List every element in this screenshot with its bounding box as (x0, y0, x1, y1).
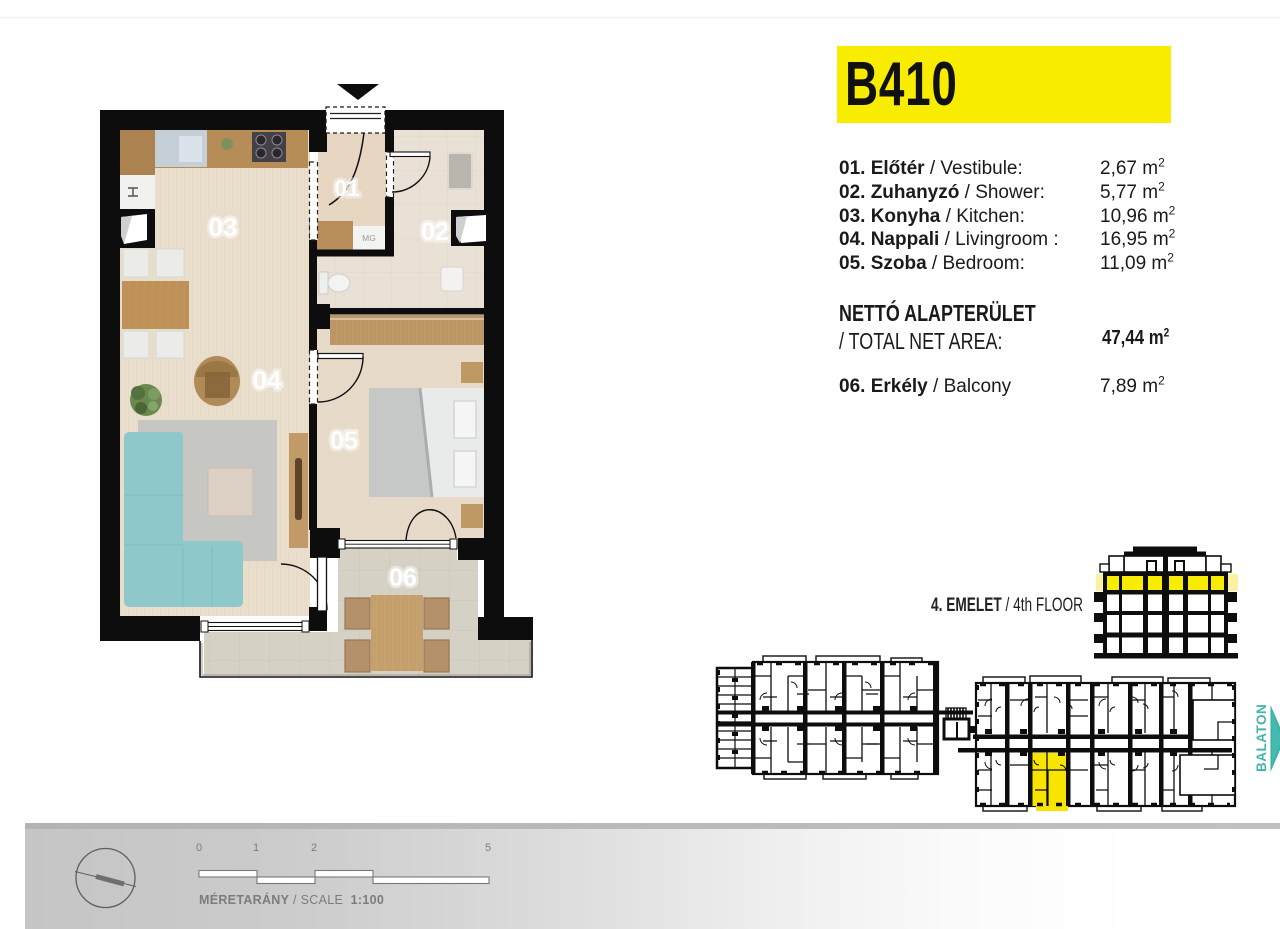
svg-text:02: 02 (421, 218, 449, 246)
svg-text:04: 04 (253, 365, 282, 395)
svg-text:06: 06 (389, 564, 417, 592)
svg-text:MG: MG (362, 233, 376, 243)
svg-text:03: 03 (209, 212, 238, 242)
svg-text:05: 05 (330, 427, 358, 455)
svg-text:01: 01 (334, 175, 360, 201)
